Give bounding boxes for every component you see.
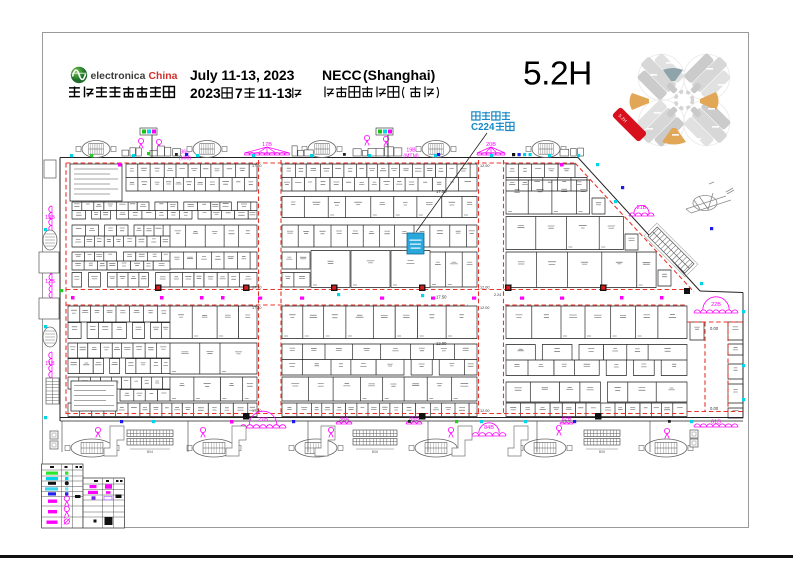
svg-text:2023: 2023: [190, 86, 221, 101]
svg-text:12.00: 12.00: [436, 341, 447, 346]
svg-text:NECC: NECC: [322, 67, 362, 83]
svg-text:China: China: [149, 71, 178, 82]
svg-text:12B: 12B: [45, 279, 55, 285]
svg-text:17B: 17B: [262, 142, 272, 148]
svg-text:electronica: electronica: [91, 71, 146, 82]
svg-text:(Shanghai): (Shanghai): [363, 67, 435, 83]
svg-text:17.50: 17.50: [436, 189, 447, 194]
svg-text:11B: 11B: [45, 361, 55, 367]
svg-text:17.30: 17.30: [252, 286, 262, 290]
svg-text:B06: B06: [372, 450, 378, 454]
svg-text:12.00: 12.00: [480, 286, 490, 290]
svg-text:7: 7: [235, 86, 243, 101]
svg-text:12.00: 12.00: [480, 306, 490, 310]
svg-text:July 11-13, 2023: July 11-13, 2023: [190, 67, 295, 83]
svg-text:2.24: 2.24: [494, 293, 501, 297]
svg-text:17.30: 17.30: [252, 164, 262, 168]
svg-text:12.00: 12.00: [480, 164, 490, 168]
svg-text:5.2H: 5.2H: [523, 56, 592, 93]
svg-text:20B: 20B: [486, 142, 496, 148]
svg-text:22B: 22B: [711, 302, 721, 308]
svg-text:B05: B05: [599, 450, 605, 454]
svg-text:0.00: 0.00: [710, 406, 719, 411]
svg-text:21B: 21B: [637, 205, 647, 211]
svg-text:12.00: 12.00: [480, 409, 490, 413]
svg-text:61B: 61B: [711, 420, 721, 426]
svg-text:0.00: 0.00: [710, 326, 719, 331]
svg-text:B04: B04: [147, 450, 153, 454]
svg-text:84B: 84B: [484, 425, 494, 431]
svg-text:13B: 13B: [45, 215, 55, 221]
svg-text:27B: 27B: [258, 417, 268, 423]
svg-text:(MM): (MM): [179, 156, 191, 162]
svg-text:36A: 36A: [339, 417, 349, 423]
svg-text:11-13: 11-13: [258, 86, 293, 101]
svg-text:17.30: 17.30: [252, 306, 262, 310]
svg-text:C224: C224: [471, 122, 495, 133]
svg-text:17.50: 17.50: [436, 295, 447, 300]
svg-text:(MTM): (MTM): [403, 154, 419, 160]
svg-text:82B: 82B: [562, 417, 572, 423]
